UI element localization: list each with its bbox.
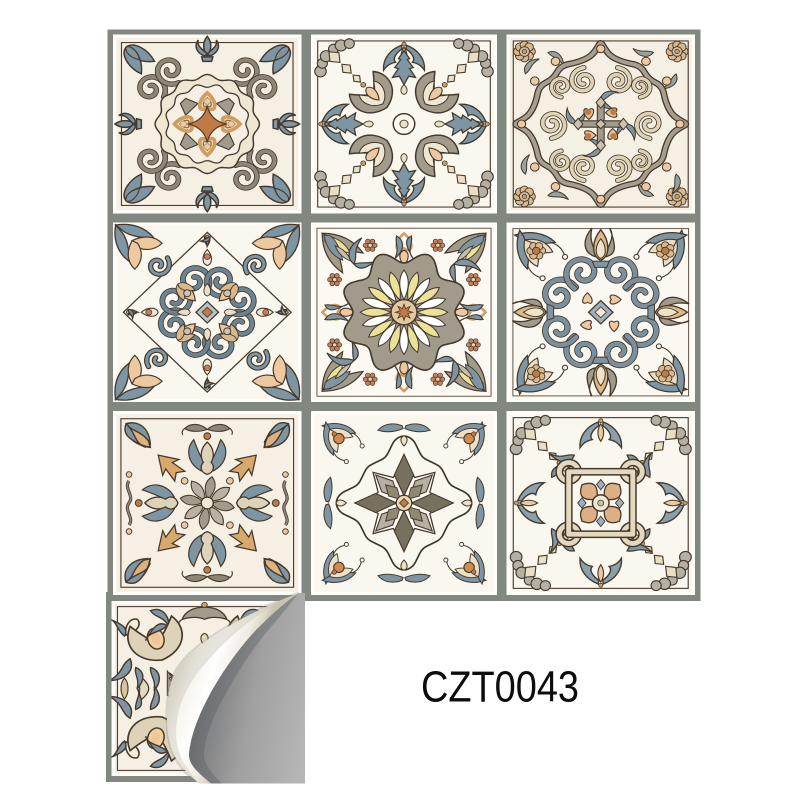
- svg-text:CZT0043: CZT0043: [421, 663, 579, 712]
